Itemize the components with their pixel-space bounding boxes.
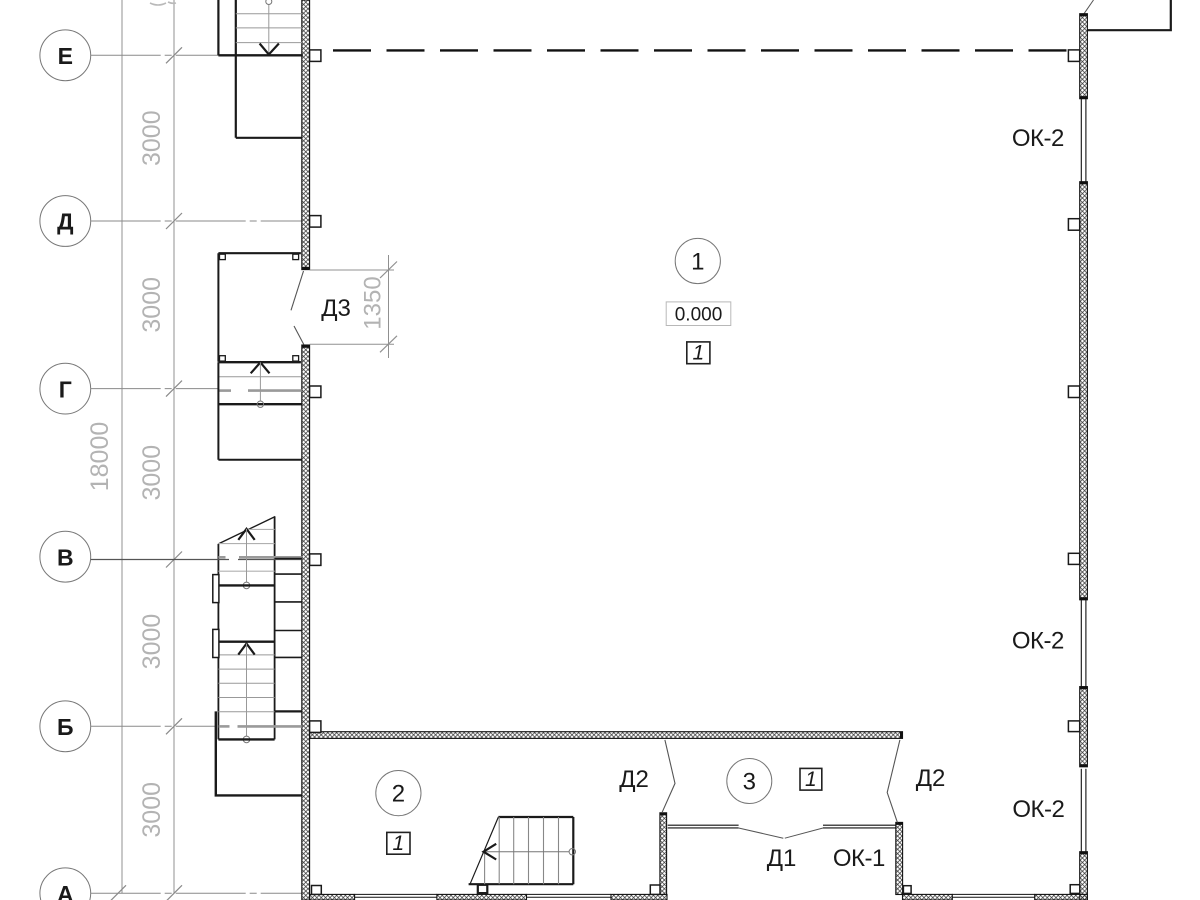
svg-text:А: А <box>57 881 74 900</box>
svg-text:3000: 3000 <box>138 110 166 166</box>
svg-text:3000: 3000 <box>138 782 166 838</box>
svg-text:0.000: 0.000 <box>675 304 723 325</box>
svg-text:ОК-2: ОК-2 <box>1012 628 1064 655</box>
svg-text:В: В <box>57 544 74 570</box>
svg-text:ОК-2: ОК-2 <box>1012 796 1064 823</box>
svg-text:1350: 1350 <box>360 276 387 329</box>
svg-text:3000: 3000 <box>138 277 166 333</box>
svg-text:3: 3 <box>743 769 756 796</box>
svg-text:3000: 3000 <box>138 445 166 501</box>
svg-text:Е: Е <box>58 43 73 69</box>
svg-text:Г: Г <box>59 376 72 402</box>
svg-text:1: 1 <box>692 342 704 365</box>
svg-text:Б: Б <box>57 714 74 740</box>
svg-text:Д3: Д3 <box>321 295 351 322</box>
svg-text:1: 1 <box>691 249 704 276</box>
svg-text:Д2: Д2 <box>619 766 649 793</box>
svg-text:ОК-2: ОК-2 <box>1012 125 1064 152</box>
svg-text:ОК-1: ОК-1 <box>833 845 885 872</box>
svg-text:Д1: Д1 <box>767 845 797 872</box>
svg-text:Д: Д <box>57 209 73 235</box>
svg-text:2: 2 <box>392 781 405 808</box>
svg-text:18000: 18000 <box>86 422 114 492</box>
svg-text:1: 1 <box>805 768 817 791</box>
svg-text:3000: 3000 <box>138 614 166 670</box>
svg-text:Д2: Д2 <box>916 765 946 792</box>
svg-text:1: 1 <box>393 832 405 855</box>
